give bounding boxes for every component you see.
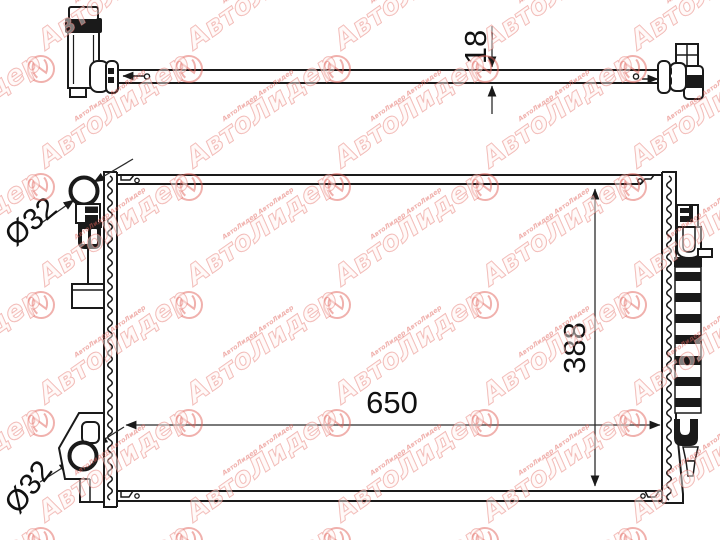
watermark-brand-text: АвтоЛидер: [31, 282, 196, 410]
side-rib: [676, 293, 701, 302]
watermark-brand-text: АвтоЛидер: [31, 164, 196, 292]
inlet-pipe-circle: [71, 178, 98, 205]
outlet-body: [670, 63, 686, 91]
core-bottom-hole-left: [135, 494, 139, 498]
side-rib: [676, 398, 701, 407]
core-top-hole-left: [135, 178, 139, 182]
right-tank-crimp-seam: [667, 176, 672, 500]
radiator-technical-drawing: 18: [0, 0, 720, 540]
outlet-bracket-tab: [82, 422, 99, 443]
watermark-brand-text: АвтоЛидер: [475, 46, 640, 174]
drawing-canvas: 18: [0, 0, 720, 540]
watermark-brand-text: АвтоЛидер: [327, 46, 492, 174]
watermark-brand-text: АвтоЛидер: [179, 0, 344, 57]
bottom-hook-slot: [680, 419, 690, 435]
left-flange-bolt: [108, 68, 114, 74]
watermark-brand-text: АвтоЛидер: [475, 400, 640, 528]
outlet-fitting: [658, 44, 703, 99]
watermark-brand-text: АвтоЛидер: [475, 0, 640, 57]
upper-pipe-leader-high: [94, 159, 133, 182]
side-rib: [676, 272, 701, 281]
watermark-brand-text: АвтоЛидер: [31, 400, 196, 528]
watermark-brand-text: АвтоЛидер: [623, 0, 720, 57]
inlet-flange-mark: [85, 207, 98, 214]
watermark-brand-text: АвтоЛидер: [179, 400, 344, 528]
watermark-brand-text: АвтоЛидер: [179, 282, 344, 410]
right-flange: [658, 61, 670, 93]
left-flange-bolt: [108, 77, 114, 83]
watermark-brand-text: АвтоЛидер: [31, 0, 196, 57]
side-rib: [676, 314, 701, 323]
watermark-brand-text: АвтоЛидер: [475, 282, 640, 410]
watermark-brand-text: АвтоЛидер: [0, 518, 48, 540]
watermark-brand-text: АвтоЛидер: [179, 46, 344, 174]
left-mount-bracket: [72, 284, 104, 308]
